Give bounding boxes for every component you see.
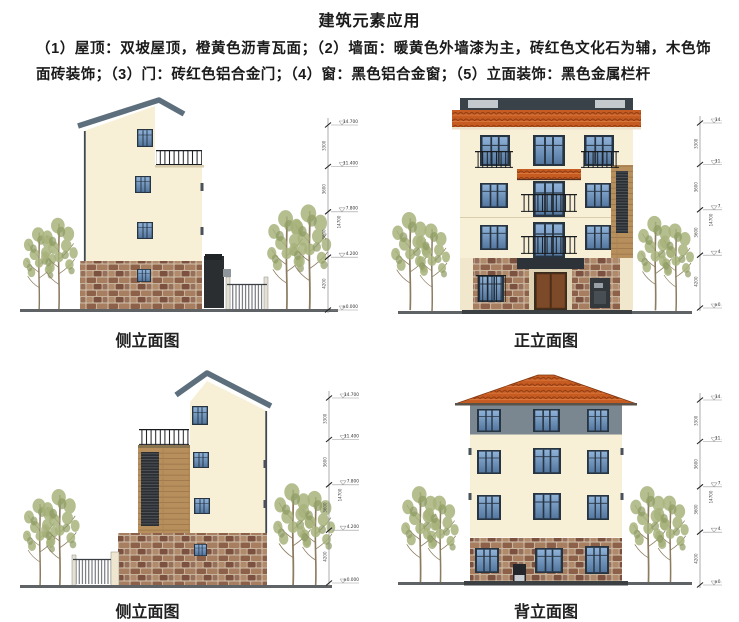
tree — [415, 224, 450, 312]
parapet-vent — [595, 100, 625, 108]
tree — [423, 496, 459, 585]
window — [194, 544, 207, 556]
total-dimension-label: 14700 — [709, 490, 714, 503]
trees-left — [391, 212, 450, 311]
window — [137, 222, 153, 239]
figure-caption: 背立面图 — [370, 598, 722, 622]
tree — [289, 204, 331, 309]
segment-label: 3600 — [322, 457, 327, 468]
level-label: 11.400 — [715, 435, 722, 441]
ground-line — [20, 309, 338, 312]
slab-shadow — [201, 183, 204, 191]
terrace-railing — [156, 150, 202, 165]
figure-caption: 正立面图 — [370, 327, 722, 351]
window — [475, 548, 499, 573]
window — [585, 546, 609, 574]
fence-post — [264, 277, 268, 310]
window — [587, 450, 609, 474]
total-dimension-label: 14700 — [709, 213, 714, 226]
segment-label: 3300 — [322, 413, 327, 424]
side-elevation-drawing-2: 14.700 11.400 7.800 4.200 ±0.000 3300 36… — [20, 360, 365, 596]
level-label: 7.800 — [718, 204, 722, 210]
segment-label: 3600 — [693, 182, 698, 193]
level-label: 4.200 — [347, 524, 360, 530]
building — [78, 100, 204, 310]
figure-front-elevation: 14.700 11.400 7.800 4.200 ±0.000 3300 36… — [370, 95, 722, 351]
gate-pillar — [111, 552, 119, 586]
level-label: 7.800 — [718, 481, 722, 487]
building — [455, 375, 637, 584]
dimension-ruler: 14.700 11.400 7.800 4.200 ±0.000 3300 36… — [321, 118, 358, 313]
dimension-labels: 14.700 11.400 7.800 4.200 ±0.000 3300 36… — [321, 119, 358, 310]
window — [137, 129, 153, 147]
tree — [391, 212, 430, 310]
slab-shadow — [201, 227, 204, 235]
window — [533, 493, 561, 520]
total-dimension-label: 14700 — [338, 488, 343, 501]
level-label: 11.400 — [343, 160, 358, 166]
stone-base — [118, 533, 267, 585]
window — [477, 409, 501, 432]
segment-label: 4200 — [693, 276, 698, 287]
roof-fascia — [452, 127, 641, 130]
balcony-railing — [475, 151, 513, 168]
segment-label: 4200 — [693, 553, 698, 564]
slab-shadow — [621, 448, 624, 455]
slab-shadow — [264, 460, 267, 468]
tree — [659, 224, 694, 312]
body-paragraph: （1）屋顶：双坡屋顶，橙黄色沥青瓦面；（2）墙面：暖黄色外墙漆为主，砖红色文化石… — [36, 36, 711, 88]
trees-left — [23, 218, 78, 311]
window — [477, 450, 501, 474]
ground-shadow — [464, 581, 628, 586]
level-label: ±0.000 — [343, 577, 359, 583]
level-label: 4.200 — [718, 526, 722, 532]
segment-label: 3600 — [322, 502, 327, 513]
tree — [41, 218, 78, 310]
balcony-railing — [521, 194, 577, 212]
trees-left — [23, 489, 80, 586]
ruler-graphic — [325, 118, 358, 313]
fence — [72, 552, 119, 586]
window — [533, 448, 561, 474]
tree — [629, 486, 669, 585]
ruler-graphic — [326, 391, 359, 586]
figure-side-elevation-2: 14.700 11.400 7.800 4.200 ±0.000 3300 36… — [20, 360, 365, 622]
level-label: 14.700 — [715, 394, 722, 400]
level-label: 14.700 — [715, 117, 722, 123]
window — [587, 409, 609, 432]
window — [477, 495, 501, 520]
trees-left — [401, 486, 459, 585]
dimension-ruler: 14.700 11.400 7.800 4.200 ±0.000 3300 36… — [693, 393, 722, 588]
window — [192, 406, 208, 425]
parapet-vent — [468, 100, 498, 108]
tile-roof-band — [452, 110, 641, 127]
annex-cap — [205, 254, 222, 260]
trees-right — [629, 486, 689, 585]
building — [118, 373, 271, 585]
slab-shadow — [469, 493, 472, 500]
window — [535, 548, 563, 573]
trees-right — [637, 216, 694, 311]
figure-caption: 侧立面图 — [20, 598, 275, 622]
segment-label: 3300 — [693, 138, 698, 149]
window — [137, 269, 151, 282]
document-page: 建筑元素应用 （1）屋顶：双坡屋顶，橙黄色沥青瓦面；（2）墙面：暖黄色外墙漆为主… — [0, 0, 739, 622]
balcony-railing — [521, 236, 577, 254]
fence-post — [226, 277, 230, 310]
slab-shadow — [621, 493, 624, 500]
louver-panel — [141, 452, 159, 526]
terrace-slab — [155, 165, 204, 168]
level-label: 14.700 — [343, 119, 358, 125]
tower-cap — [138, 445, 190, 448]
slab-shadow — [469, 448, 472, 455]
total-dimension-label: 14700 — [337, 215, 342, 228]
trees-right — [267, 204, 331, 310]
window — [480, 183, 508, 208]
segment-label: 3600 — [693, 459, 698, 470]
level-label: 11.400 — [344, 433, 359, 439]
segment-label: 3300 — [693, 415, 698, 426]
dimension-ruler: 14.700 11.400 7.800 4.200 ±0.000 3300 36… — [693, 116, 722, 311]
stone-edge-strip — [620, 258, 633, 310]
fence-bars — [76, 559, 111, 584]
wood-louver — [616, 171, 628, 233]
dimension-ruler: 14.700 11.400 7.800 4.200 ±0.000 3300 36… — [322, 391, 359, 586]
segment-label: 4200 — [321, 278, 326, 289]
meter-box — [223, 269, 231, 277]
ruler-graphic — [697, 393, 722, 588]
tree — [297, 491, 335, 586]
level-label: 14.700 — [344, 392, 359, 398]
building — [452, 98, 641, 311]
figure-side-elevation-1: 14.700 11.400 7.800 4.200 ±0.000 3300 36… — [20, 95, 365, 351]
window — [480, 225, 508, 250]
window — [585, 225, 611, 250]
front-elevation-drawing: 14.700 11.400 7.800 4.200 ±0.000 3300 36… — [370, 95, 722, 325]
gable-tile-roof — [455, 375, 637, 404]
dimension-labels: 14.700 11.400 7.800 4.200 ±0.000 3300 36… — [322, 392, 359, 583]
level-label: ±0.000 — [342, 304, 358, 310]
window — [194, 498, 210, 514]
window — [585, 183, 611, 208]
door-leaf — [537, 274, 551, 308]
segment-label: 3600 — [321, 229, 326, 240]
figure-caption: 侧立面图 — [20, 327, 275, 351]
entrance-canopy — [517, 258, 584, 269]
ground-shadow — [462, 310, 632, 314]
window — [533, 135, 565, 166]
window — [193, 452, 209, 468]
segment-label: 3300 — [321, 140, 326, 151]
window — [135, 176, 151, 193]
level-label: 7.800 — [347, 479, 360, 485]
fence-bars — [230, 284, 264, 309]
window — [533, 409, 560, 432]
tile-awning — [517, 169, 581, 180]
level-label: ±0.000 — [714, 302, 722, 308]
segment-label: 3600 — [693, 504, 698, 515]
fence — [226, 277, 268, 310]
utility-panel — [590, 278, 610, 308]
tree — [653, 496, 689, 585]
trees-right — [273, 483, 335, 586]
balcony-railing — [581, 151, 619, 168]
back-elevation-drawing: 14.700 11.400 7.800 4.200 ±0.000 3300 36… — [370, 360, 722, 596]
side-elevation-drawing-1: 14.700 11.400 7.800 4.200 ±0.000 3300 36… — [20, 95, 365, 325]
segment-label: 4200 — [322, 551, 327, 562]
stone-base — [80, 261, 202, 310]
dark-annex — [204, 256, 224, 308]
page-title: 建筑元素应用 — [0, 0, 739, 31]
window-railing — [476, 275, 506, 302]
segment-label: 3600 — [693, 227, 698, 238]
level-label: 4.200 — [718, 249, 722, 255]
stone-edge-strip — [460, 258, 473, 310]
slab-shadow — [264, 500, 267, 508]
ruler-graphic — [697, 116, 722, 311]
level-label: ±0.000 — [714, 579, 722, 585]
eave-line — [455, 403, 637, 406]
level-label: 11.400 — [715, 158, 722, 164]
level-label: 4.200 — [346, 251, 359, 257]
ground-line — [20, 585, 332, 588]
window — [587, 495, 609, 520]
terrace-railing — [139, 429, 189, 445]
door-leaf — [552, 274, 566, 308]
figure-back-elevation: 14.700 11.400 7.800 4.200 ±0.000 3300 36… — [370, 360, 722, 622]
segment-label: 3600 — [321, 184, 326, 195]
level-label: 7.800 — [346, 206, 359, 212]
